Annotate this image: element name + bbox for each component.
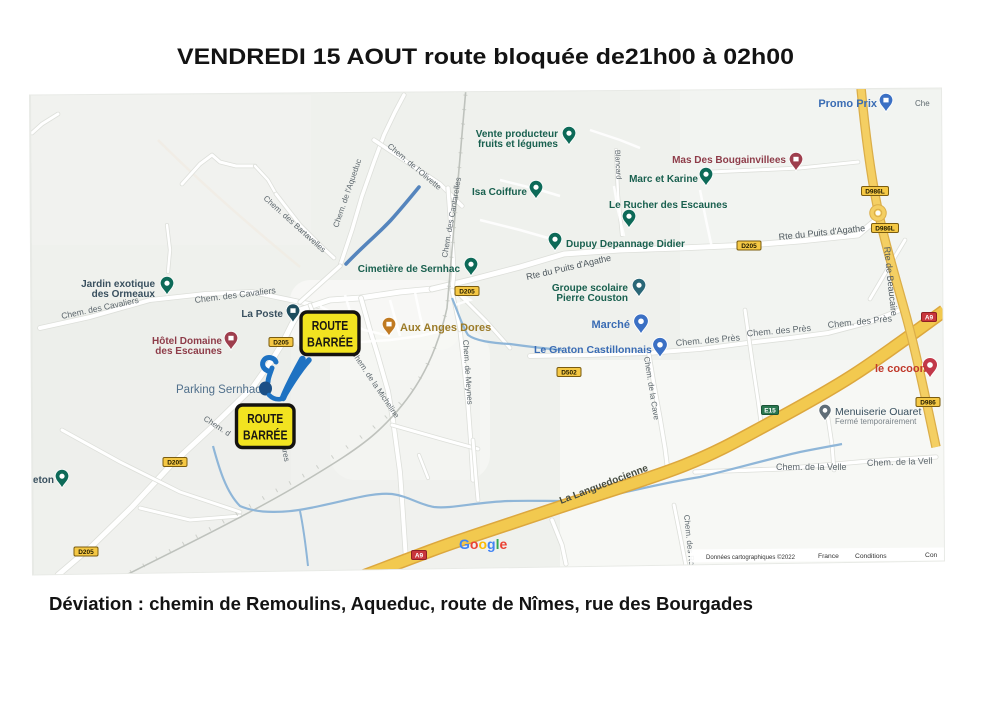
svg-text:D205: D205 xyxy=(741,243,757,250)
svg-text:D986L: D986L xyxy=(865,188,885,195)
svg-text:Che: Che xyxy=(915,99,930,108)
svg-text:A9: A9 xyxy=(415,552,424,559)
svg-text:Promo Prix: Promo Prix xyxy=(818,98,878,110)
svg-text:Blancard: Blancard xyxy=(613,150,624,180)
svg-text:Le Graton Castillonnais: Le Graton Castillonnais xyxy=(534,344,652,356)
svg-text:Dupuy Depannage Didier: Dupuy Depannage Didier xyxy=(566,239,685,250)
svg-text:E15: E15 xyxy=(764,407,776,414)
svg-text:D205: D205 xyxy=(167,459,183,466)
svg-text:France: France xyxy=(818,553,839,560)
svg-text:Déviation : chemin de Remoulin: Déviation : chemin de Remoulins, Aqueduc… xyxy=(49,594,753,614)
svg-text:A9: A9 xyxy=(925,314,934,321)
svg-text:des Escaunes: des Escaunes xyxy=(155,346,222,357)
svg-text:eton: eton xyxy=(33,475,54,486)
svg-text:Google: Google xyxy=(459,536,507,552)
svg-text:ROUTE: ROUTE xyxy=(312,319,349,333)
svg-text:Mas Des Bougainvillees: Mas Des Bougainvillees xyxy=(672,155,786,166)
svg-text:fruits et légumes: fruits et légumes xyxy=(478,139,558,150)
svg-text:La Poste: La Poste xyxy=(241,309,283,320)
svg-text:ROUTE: ROUTE xyxy=(247,412,283,426)
svg-text:BARRÉE: BARRÉE xyxy=(243,428,288,443)
svg-text:D205: D205 xyxy=(273,339,289,346)
svg-text:le cocoon: le cocoon xyxy=(875,363,927,375)
svg-text:D986: D986 xyxy=(920,399,936,406)
svg-text:Marché: Marché xyxy=(591,319,630,331)
svg-text:Fermé temporairement: Fermé temporairement xyxy=(835,417,917,426)
svg-text:VENDREDI 15 AOUT route bloquée: VENDREDI 15 AOUT route bloquée de21h00 à… xyxy=(177,44,794,69)
svg-text:BARRÉE: BARRÉE xyxy=(307,335,353,350)
svg-text:Marc et Karine: Marc et Karine xyxy=(629,174,698,185)
svg-text:D502: D502 xyxy=(561,369,577,376)
svg-text:Isa Coiffure: Isa Coiffure xyxy=(472,187,527,198)
svg-text:Conditions: Conditions xyxy=(855,553,887,560)
svg-text:D205: D205 xyxy=(78,549,94,556)
svg-text:Chem. de la Velle: Chem. de la Velle xyxy=(776,462,847,472)
svg-text:D205: D205 xyxy=(459,288,475,295)
svg-text:Cimetière de Sernhac: Cimetière de Sernhac xyxy=(358,264,461,275)
svg-text:Aux Anges Dores: Aux Anges Dores xyxy=(400,322,491,334)
svg-text:Con: Con xyxy=(925,552,938,559)
svg-text:Parking Sernhac: Parking Sernhac xyxy=(176,384,261,396)
svg-text:des Ormeaux: des Ormeaux xyxy=(92,289,156,300)
svg-text:Pierre Couston: Pierre Couston xyxy=(556,293,628,304)
svg-text:Données cartographiques ©2022: Données cartographiques ©2022 xyxy=(706,553,795,561)
svg-text:Le Rucher des Escaunes: Le Rucher des Escaunes xyxy=(609,200,728,211)
svg-text:D986L: D986L xyxy=(875,225,895,232)
